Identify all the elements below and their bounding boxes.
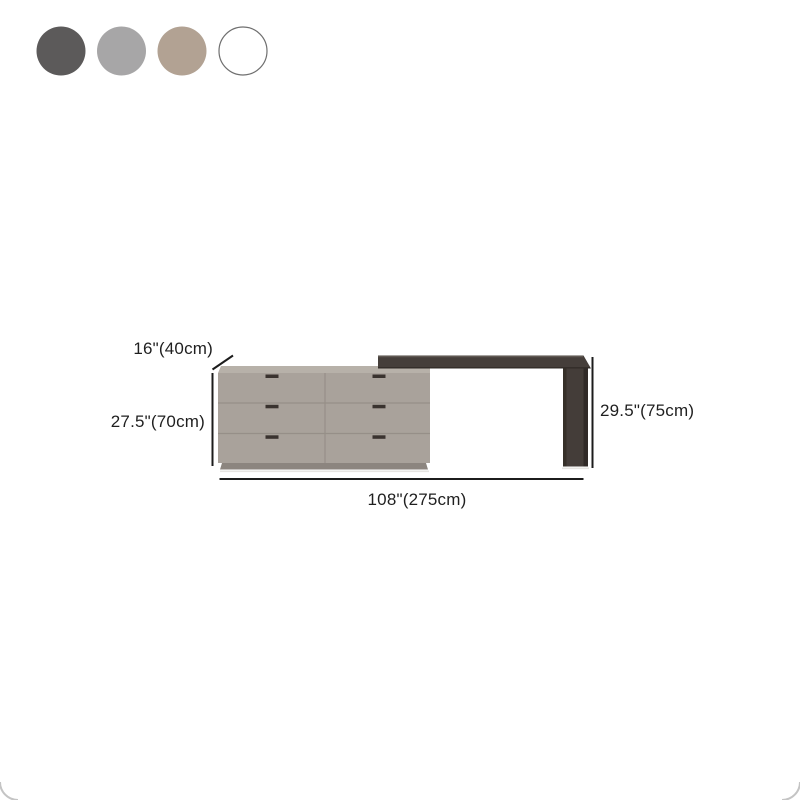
drawer-handle [373,405,386,409]
desk-leg-right-edge [584,369,589,467]
total-width-dimension-label: 108"(275cm) [368,490,467,509]
furniture-illustration [218,356,591,473]
drawer-handle [266,375,279,379]
drawer-handle [373,375,386,379]
dresser-height-dimension-label: 27.5"(70cm) [111,412,205,431]
color-swatch-dark-gray[interactable] [37,27,86,76]
color-swatch-light-gray[interactable] [97,27,146,76]
color-swatch-tan[interactable] [158,27,207,76]
dresser-floor-shadow [220,471,429,473]
desk-leg-left-edge [563,369,567,467]
desk-leg-floor-shadow [562,468,589,470]
dresser-front [218,373,430,463]
product-dimension-image: 16"(40cm) 27.5"(70cm) 29.5"(75cm) 108"(2… [0,0,800,800]
drawer-handle [266,405,279,409]
corner-arc-bottom-left [0,782,18,800]
corner-arc-bottom-right [782,782,800,800]
color-swatches [37,27,268,76]
drawer-handle [373,435,386,439]
image-corner-arcs [0,782,800,800]
drawer-handle [266,435,279,439]
color-swatch-white[interactable] [219,27,267,75]
desk-top-slab [378,356,591,369]
dresser-plinth [220,463,428,470]
desk-height-dimension-label: 29.5"(75cm) [600,401,694,420]
depth-dimension-label: 16"(40cm) [133,339,213,358]
